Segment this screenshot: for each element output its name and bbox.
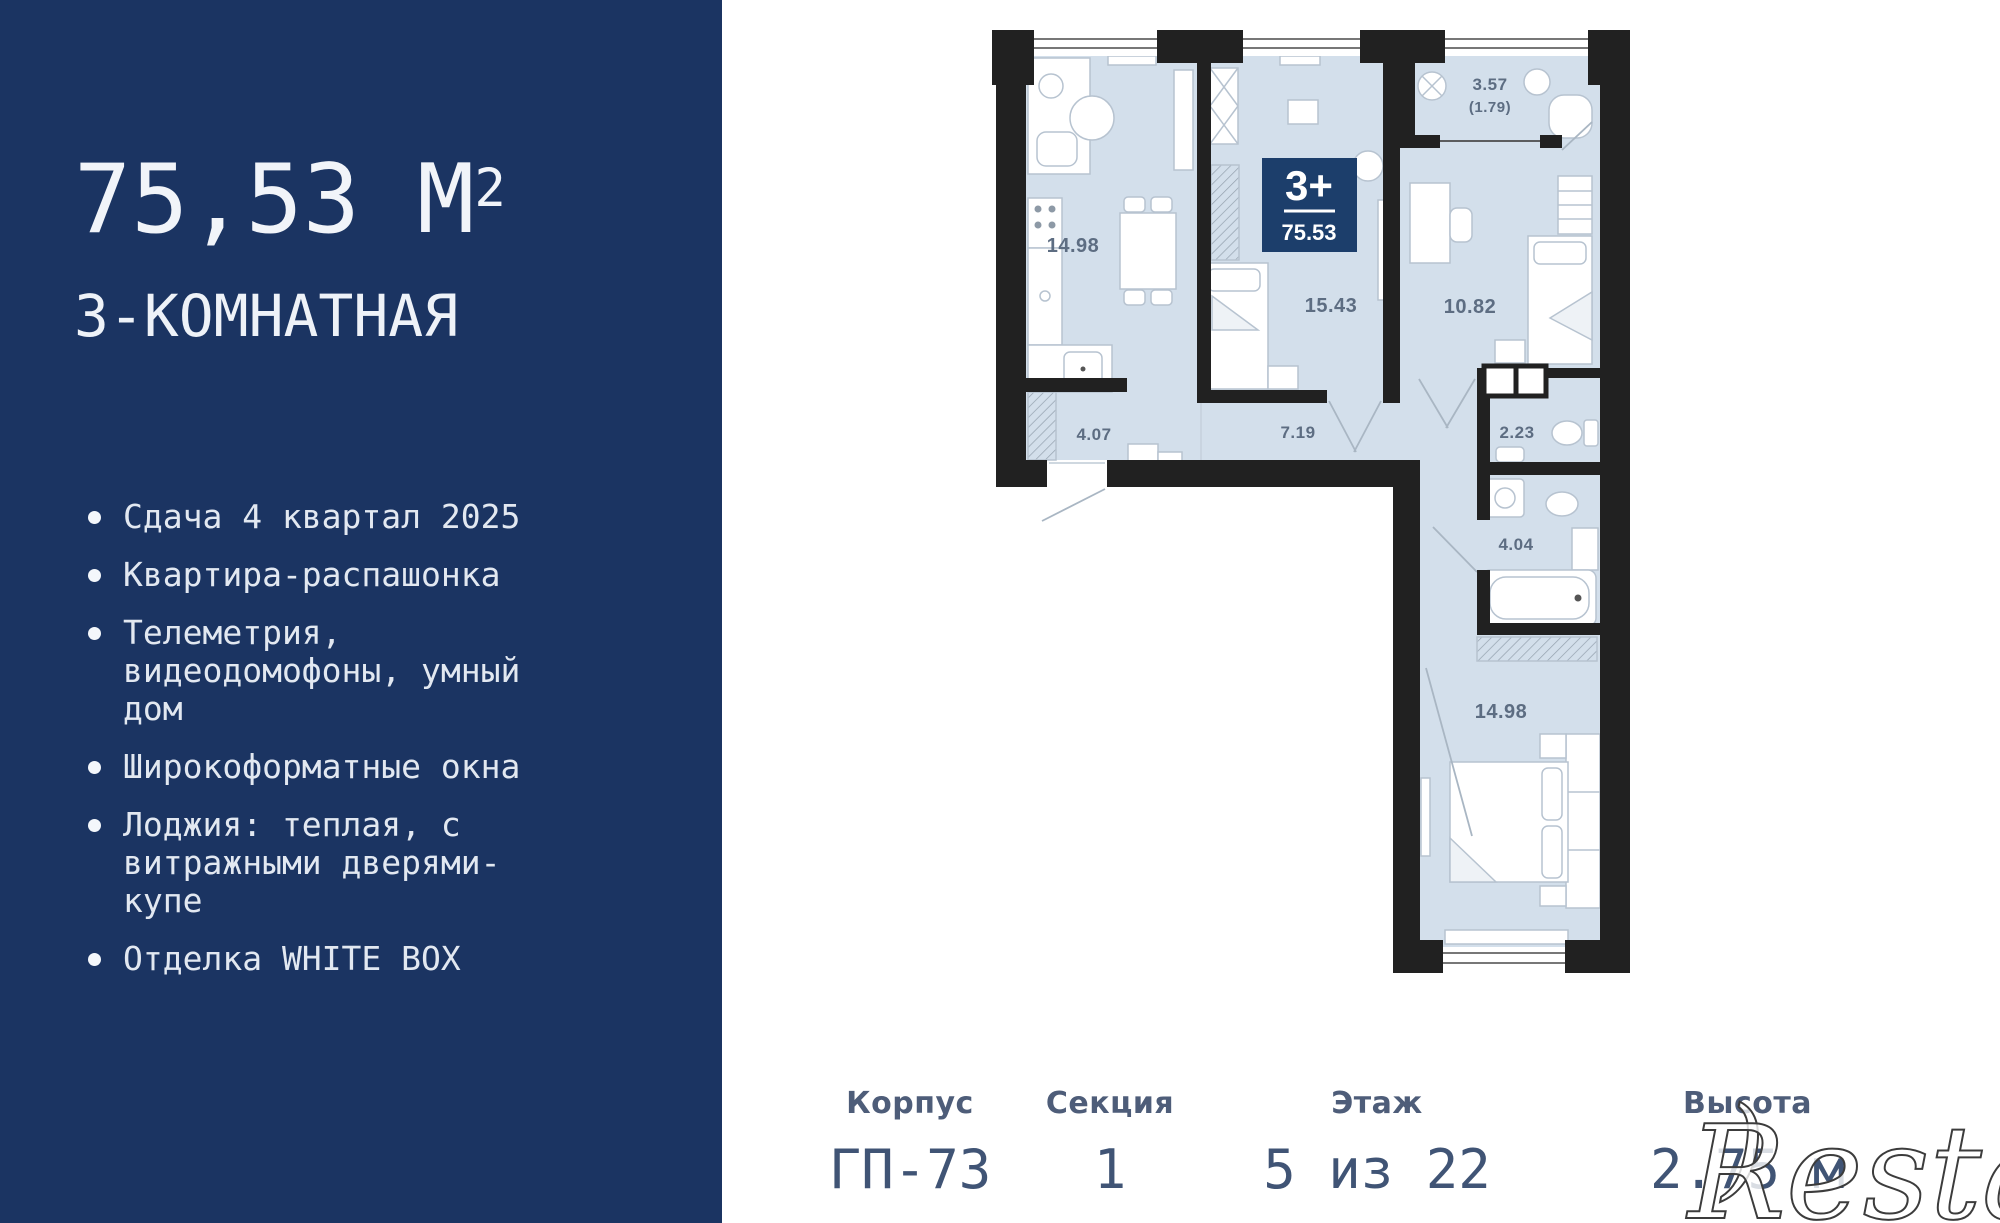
room-label-bathroom: 4.04 xyxy=(1498,535,1533,554)
window-bedroom xyxy=(1243,30,1360,56)
toilet-icon xyxy=(1552,420,1598,446)
badge-area: 75.53 xyxy=(1281,220,1336,245)
radiator xyxy=(1280,56,1320,65)
room-label-corridor: 7.19 xyxy=(1280,423,1315,442)
bullet-icon xyxy=(88,761,101,774)
room-label-wc: 2.23 xyxy=(1499,423,1534,442)
info-korpus-label: Корпус xyxy=(800,1086,1020,1121)
badge-rooms: 3+ xyxy=(1285,162,1333,209)
feature-text: Лоджия: теплая, с витражными дверями-куп… xyxy=(123,806,535,920)
vent-shaft xyxy=(1477,637,1597,661)
round-table xyxy=(1070,96,1114,140)
bullet-icon xyxy=(88,953,101,966)
room-label-kitchen: 14.98 xyxy=(1047,235,1100,257)
loggia-table xyxy=(1524,69,1550,95)
bullet-icon xyxy=(88,569,101,582)
feature-item: Квартира-распашонка xyxy=(88,556,535,594)
room-label-loggia: 3.57 xyxy=(1472,75,1507,94)
sidebar: 75,53 М2 3-КОМНАТНАЯ Сдача 4 квартал 202… xyxy=(0,0,722,1223)
info-sekcia-value: 1 xyxy=(1000,1138,1220,1201)
room-label-hallway: 4.07 xyxy=(1076,425,1111,444)
feature-text: Телеметрия, видеодомофоны, умный дом xyxy=(123,614,535,728)
bath-sink xyxy=(1546,492,1578,516)
wardrobe-x xyxy=(1210,68,1238,144)
plan-badge: 3+ 75.53 xyxy=(1262,158,1357,252)
area-title: 75,53 М2 xyxy=(74,148,506,253)
area-superscript: 2 xyxy=(474,159,505,219)
feature-item: Сдача 4 квартал 2025 xyxy=(88,498,535,536)
shelf-strip xyxy=(1211,165,1239,260)
wardrobe-bedroom2 xyxy=(1566,734,1600,908)
feature-text: Квартира-распашонка xyxy=(123,556,535,594)
window-bedroom2 xyxy=(1443,947,1565,967)
plant-icon xyxy=(1418,72,1446,100)
floor-plan: 14.98 15.43 10.82 3.57 (1.79) 4.07 7.19 … xyxy=(975,15,1655,1015)
dresser xyxy=(1288,100,1318,124)
radiator xyxy=(1421,778,1430,856)
bath-cabinet xyxy=(1572,528,1598,570)
room-label-bedroom2: 14.98 xyxy=(1475,701,1528,723)
feature-item: Отделка WHITE BOX xyxy=(88,940,535,978)
wardrobe-striped xyxy=(1558,176,1592,234)
info-korpus: Корпус ГП-73 xyxy=(800,1086,1020,1201)
info-sekcia: Секция 1 xyxy=(1000,1086,1220,1201)
feature-item: Лоджия: теплая, с витражными дверями-куп… xyxy=(88,806,535,920)
room-label-children: 10.82 xyxy=(1444,296,1497,318)
dining-table xyxy=(1120,197,1176,305)
feature-item: Телеметрия, видеодомофоны, умный дом xyxy=(88,614,535,728)
kitchen-sink-icon xyxy=(1039,74,1063,98)
feature-text: Сдача 4 квартал 2025 xyxy=(123,498,535,536)
sliding-door-icon xyxy=(1484,366,1546,396)
bullet-icon xyxy=(88,819,101,832)
info-sekcia-label: Секция xyxy=(1000,1086,1220,1121)
room-label-bedroom: 15.43 xyxy=(1305,295,1358,317)
window-sill xyxy=(1445,930,1568,944)
watermark: ) Restate xyxy=(1440,1030,2000,1223)
info-korpus-value: ГП-73 xyxy=(800,1138,1020,1201)
area-value: 75,53 М xyxy=(74,145,474,255)
bullet-icon xyxy=(88,511,101,524)
feature-text: Отделка WHITE BOX xyxy=(123,940,535,978)
pouf xyxy=(1353,151,1383,181)
window-kitchen xyxy=(1034,30,1157,56)
wc-sink xyxy=(1496,447,1524,462)
feature-list: Сдача 4 квартал 2025 Квартира-распашонка… xyxy=(88,498,535,998)
apartment-type: 3-КОМНАТНАЯ xyxy=(74,282,458,350)
watermark-text: Restate xyxy=(1686,1097,2000,1223)
room-label-loggia-reduced: (1.79) xyxy=(1469,99,1511,116)
loggia-chair xyxy=(1549,95,1592,138)
tv-unit xyxy=(1174,70,1193,170)
window-loggia xyxy=(1445,30,1588,56)
bullet-icon xyxy=(88,627,101,640)
radiator xyxy=(1108,56,1156,65)
hall-closet xyxy=(1028,392,1056,460)
feature-text: Широкоформатные окна xyxy=(123,748,535,786)
feature-item: Широкоформатные окна xyxy=(88,748,535,786)
washing-machine-icon xyxy=(1486,479,1524,517)
bathtub-icon xyxy=(1482,570,1596,626)
